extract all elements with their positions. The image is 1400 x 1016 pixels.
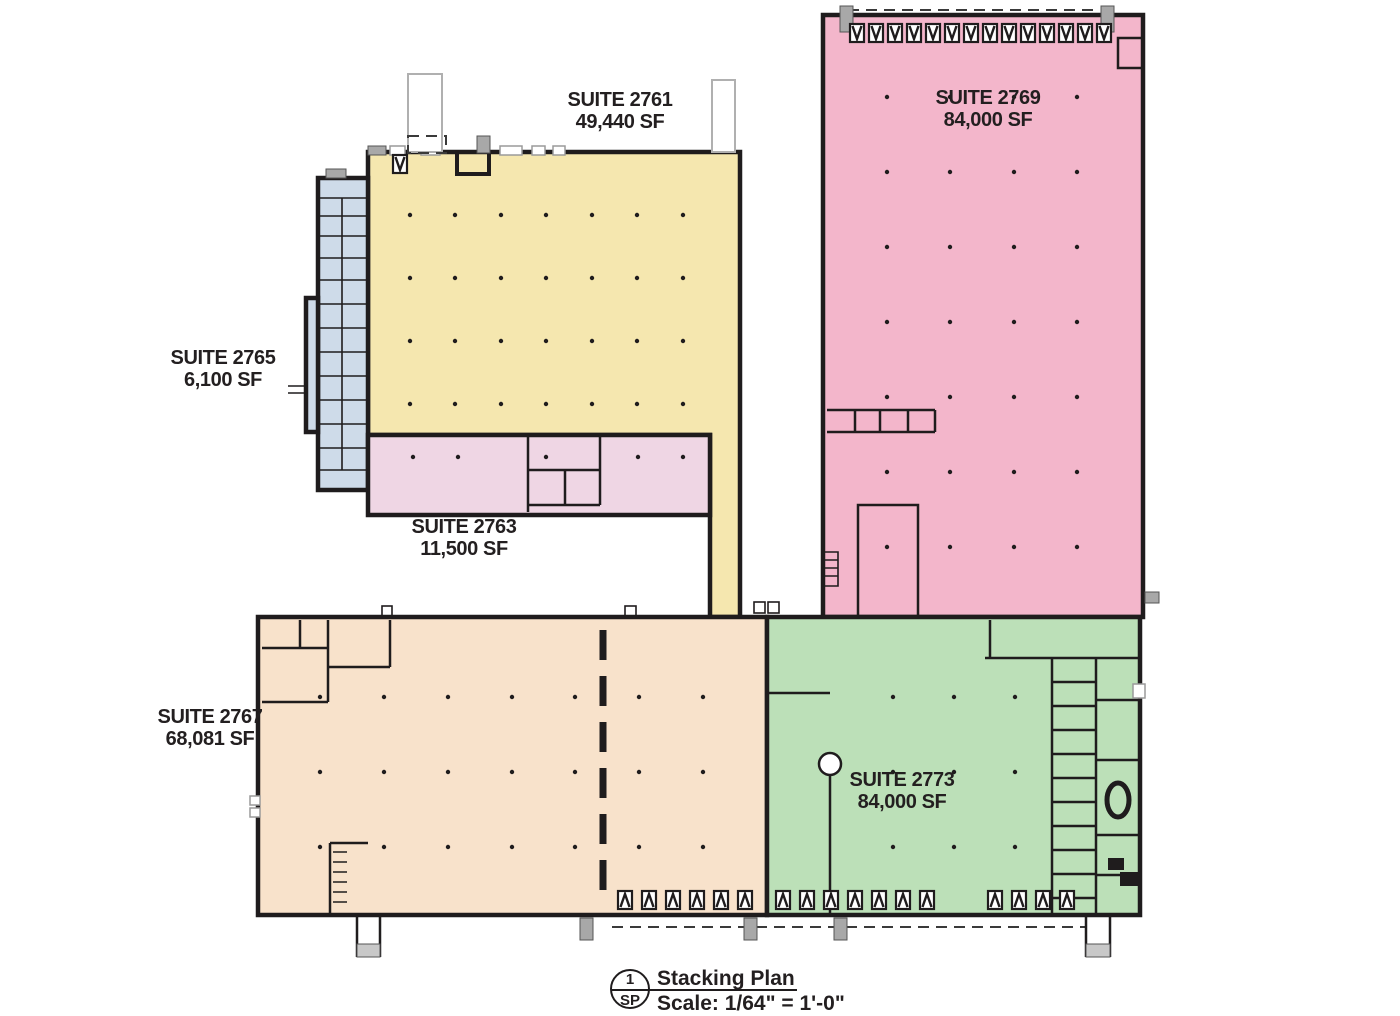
- column-grid-dot: [453, 402, 457, 406]
- dock-door-icon: [666, 891, 680, 909]
- door-leaf: [768, 602, 779, 613]
- dock-door-icon: [848, 891, 862, 909]
- column-grid-dot: [456, 455, 460, 459]
- suite-2763-region: [368, 435, 710, 515]
- column-grid-dot: [382, 770, 386, 774]
- suite-2769-name: SUITE 2769: [936, 87, 1041, 109]
- column-grid-dot: [885, 320, 889, 324]
- column-grid-dot: [510, 770, 514, 774]
- suite-2767-area: 68,081 SF: [166, 728, 255, 750]
- dock-door-icon: [690, 891, 704, 909]
- column-grid-dot: [635, 339, 639, 343]
- roof-hatch: [368, 146, 386, 155]
- suite-2763-name: SUITE 2763: [412, 516, 517, 538]
- column-grid-dot: [948, 320, 952, 324]
- dock-door-icon: [872, 891, 886, 909]
- column-grid-dot: [1012, 320, 1016, 324]
- title-block: 1 SP Stacking Plan Scale: 1/64" = 1'-0": [611, 967, 845, 1015]
- column-grid-dot: [1013, 695, 1017, 699]
- truck-well: [408, 74, 442, 152]
- column-grid-dot: [590, 213, 594, 217]
- suite-2765-annex: [306, 298, 318, 432]
- door-leaf: [754, 602, 765, 613]
- column-grid-dot: [453, 276, 457, 280]
- bollard: [834, 918, 847, 940]
- dock-door-icon: [1012, 891, 1026, 909]
- column-grid-dot: [701, 695, 705, 699]
- roof-hatch: [477, 136, 490, 153]
- dock-door-icon: [800, 891, 814, 909]
- dock-door-icon: [776, 891, 790, 909]
- door-leaf: [382, 606, 392, 616]
- dock-door-icon: [824, 891, 838, 909]
- stacking-plan-page: SUITE 2761 49,440 SF SUITE 2769 84,000 S…: [0, 0, 1400, 1016]
- suite-2765-area: 6,100 SF: [184, 369, 262, 391]
- column-grid-dot: [948, 245, 952, 249]
- column-grid-dot: [635, 276, 639, 280]
- column-grid-dot: [408, 339, 412, 343]
- column-grid-dot: [885, 245, 889, 249]
- column-grid-dot: [499, 402, 503, 406]
- column-grid-dot: [948, 170, 952, 174]
- column-grid-dot: [681, 213, 685, 217]
- bollard: [744, 918, 757, 940]
- exit-step: [1145, 592, 1159, 603]
- dock-door-icon: [393, 155, 407, 173]
- dock-door-icon: [907, 24, 921, 42]
- column-grid-dot: [573, 770, 577, 774]
- window: [532, 146, 545, 155]
- column-grid-dot: [948, 545, 952, 549]
- suite-2767-region: [258, 617, 767, 915]
- column-grid-dot: [544, 213, 548, 217]
- dock-door-icon: [896, 891, 910, 909]
- column-grid-dot: [573, 845, 577, 849]
- column-grid-dot: [1075, 545, 1079, 549]
- column-grid-dot: [382, 695, 386, 699]
- dock-door-icon: [1002, 24, 1016, 42]
- column-grid-dot: [1075, 395, 1079, 399]
- dock-door-icon: [1097, 24, 1111, 42]
- column-grid-dot: [590, 339, 594, 343]
- column-grid-dot: [453, 339, 457, 343]
- bollard: [580, 918, 593, 940]
- column-grid-dot: [1012, 245, 1016, 249]
- column-grid-dot: [891, 845, 895, 849]
- dock-door-icon: [988, 891, 1002, 909]
- column-grid-dot: [701, 770, 705, 774]
- suite-2767-name: SUITE 2767: [158, 706, 263, 728]
- column-grid-dot: [891, 695, 895, 699]
- dock-door-icon: [920, 891, 934, 909]
- suite-2761-area: 49,440 SF: [576, 111, 665, 133]
- window: [500, 146, 522, 155]
- side-door: [250, 796, 260, 805]
- suite-2761-name: SUITE 2761: [568, 89, 673, 111]
- column-grid-dot: [1013, 770, 1017, 774]
- column-grid-dot: [681, 339, 685, 343]
- drawing-scale: Scale: 1/64" = 1'-0": [657, 992, 845, 1015]
- column-grid-dot: [636, 455, 640, 459]
- entry-step: [1086, 944, 1110, 957]
- suite-2765-region: [318, 178, 368, 490]
- column-grid-dot: [446, 695, 450, 699]
- column-grid-dot: [1012, 545, 1016, 549]
- walkway: [288, 386, 306, 393]
- column-grid-dot: [499, 213, 503, 217]
- dock-door-icon: [642, 891, 656, 909]
- dock-door-icon: [1021, 24, 1035, 42]
- column-grid-dot: [701, 845, 705, 849]
- column-grid-dot: [408, 276, 412, 280]
- dock-door-icon: [926, 24, 940, 42]
- side-door: [1133, 684, 1145, 698]
- column-grid-dot: [590, 276, 594, 280]
- roof-hatch: [326, 169, 346, 178]
- column-grid-dot: [1075, 470, 1079, 474]
- column-marker: [819, 753, 841, 775]
- window: [553, 146, 565, 155]
- dock-door-icon: [888, 24, 902, 42]
- dock-door-icon: [850, 24, 864, 42]
- door-leaf: [625, 606, 636, 616]
- suite-2773-area: 84,000 SF: [858, 791, 947, 813]
- column-grid-dot: [1013, 845, 1017, 849]
- column-grid-dot: [318, 845, 322, 849]
- column-grid-dot: [544, 455, 548, 459]
- detail-number: 1: [626, 971, 634, 988]
- column-grid-dot: [499, 339, 503, 343]
- column-grid-dot: [635, 402, 639, 406]
- window: [390, 146, 405, 155]
- column-grid-dot: [318, 695, 322, 699]
- suite-2769-area: 84,000 SF: [944, 109, 1033, 131]
- dock-door-icon: [738, 891, 752, 909]
- column-grid-dot: [635, 213, 639, 217]
- column-grid-dot: [408, 402, 412, 406]
- suite-2773-name: SUITE 2773: [850, 769, 955, 791]
- column-grid-dot: [544, 339, 548, 343]
- dock-door-icon: [1040, 24, 1054, 42]
- column-grid-dot: [544, 276, 548, 280]
- column-grid-dot: [885, 545, 889, 549]
- column-grid-dot: [1075, 95, 1079, 99]
- column-grid-dot: [637, 845, 641, 849]
- column-grid-dot: [411, 455, 415, 459]
- column-grid-dot: [573, 695, 577, 699]
- dock-door-icon: [714, 891, 728, 909]
- truck-well: [712, 80, 735, 152]
- dock-door-icon: [1059, 24, 1073, 42]
- column-grid-dot: [637, 770, 641, 774]
- column-grid-dot: [590, 402, 594, 406]
- column-grid-dot: [952, 695, 956, 699]
- column-grid-dot: [382, 845, 386, 849]
- column-grid-dot: [453, 213, 457, 217]
- column-grid-dot: [1012, 170, 1016, 174]
- column-grid-dot: [499, 276, 503, 280]
- dock-door-icon: [1078, 24, 1092, 42]
- column-grid-dot: [1075, 320, 1079, 324]
- entry-step: [357, 944, 380, 957]
- column-grid-dot: [1075, 170, 1079, 174]
- column-grid-dot: [948, 395, 952, 399]
- dock-door-icon: [964, 24, 978, 42]
- column-grid-dot: [446, 770, 450, 774]
- column-grid-dot: [885, 395, 889, 399]
- fixture-block: [1108, 858, 1124, 870]
- column-grid-dot: [885, 95, 889, 99]
- floor-plan-canvas: SUITE 2761 49,440 SF SUITE 2769 84,000 S…: [0, 0, 1400, 1016]
- suite-2765-name: SUITE 2765: [171, 347, 276, 369]
- column-grid-dot: [544, 402, 548, 406]
- column-grid-dot: [952, 845, 956, 849]
- column-grid-dot: [681, 402, 685, 406]
- column-grid-dot: [885, 470, 889, 474]
- column-grid-dot: [681, 276, 685, 280]
- dock-door-icon: [1060, 891, 1074, 909]
- suite-2763-area: 11,500 SF: [420, 538, 508, 560]
- dock-door-icon: [618, 891, 632, 909]
- column-grid-dot: [948, 470, 952, 474]
- column-grid-dot: [510, 695, 514, 699]
- sheet-code: SP: [620, 992, 640, 1009]
- column-grid-dot: [318, 770, 322, 774]
- column-grid-dot: [681, 455, 685, 459]
- column-grid-dot: [446, 845, 450, 849]
- fixture-block: [1120, 872, 1138, 886]
- dock-door-icon: [983, 24, 997, 42]
- column-grid-dot: [1075, 245, 1079, 249]
- column-grid-dot: [510, 845, 514, 849]
- dock-door-icon: [869, 24, 883, 42]
- column-grid-dot: [885, 170, 889, 174]
- side-door: [250, 808, 260, 817]
- column-grid-dot: [1012, 470, 1016, 474]
- column-grid-dot: [637, 695, 641, 699]
- drawing-title: Stacking Plan: [657, 967, 795, 990]
- dock-door-icon: [1036, 891, 1050, 909]
- column-grid-dot: [408, 213, 412, 217]
- dock-door-icon: [945, 24, 959, 42]
- column-grid-dot: [1012, 395, 1016, 399]
